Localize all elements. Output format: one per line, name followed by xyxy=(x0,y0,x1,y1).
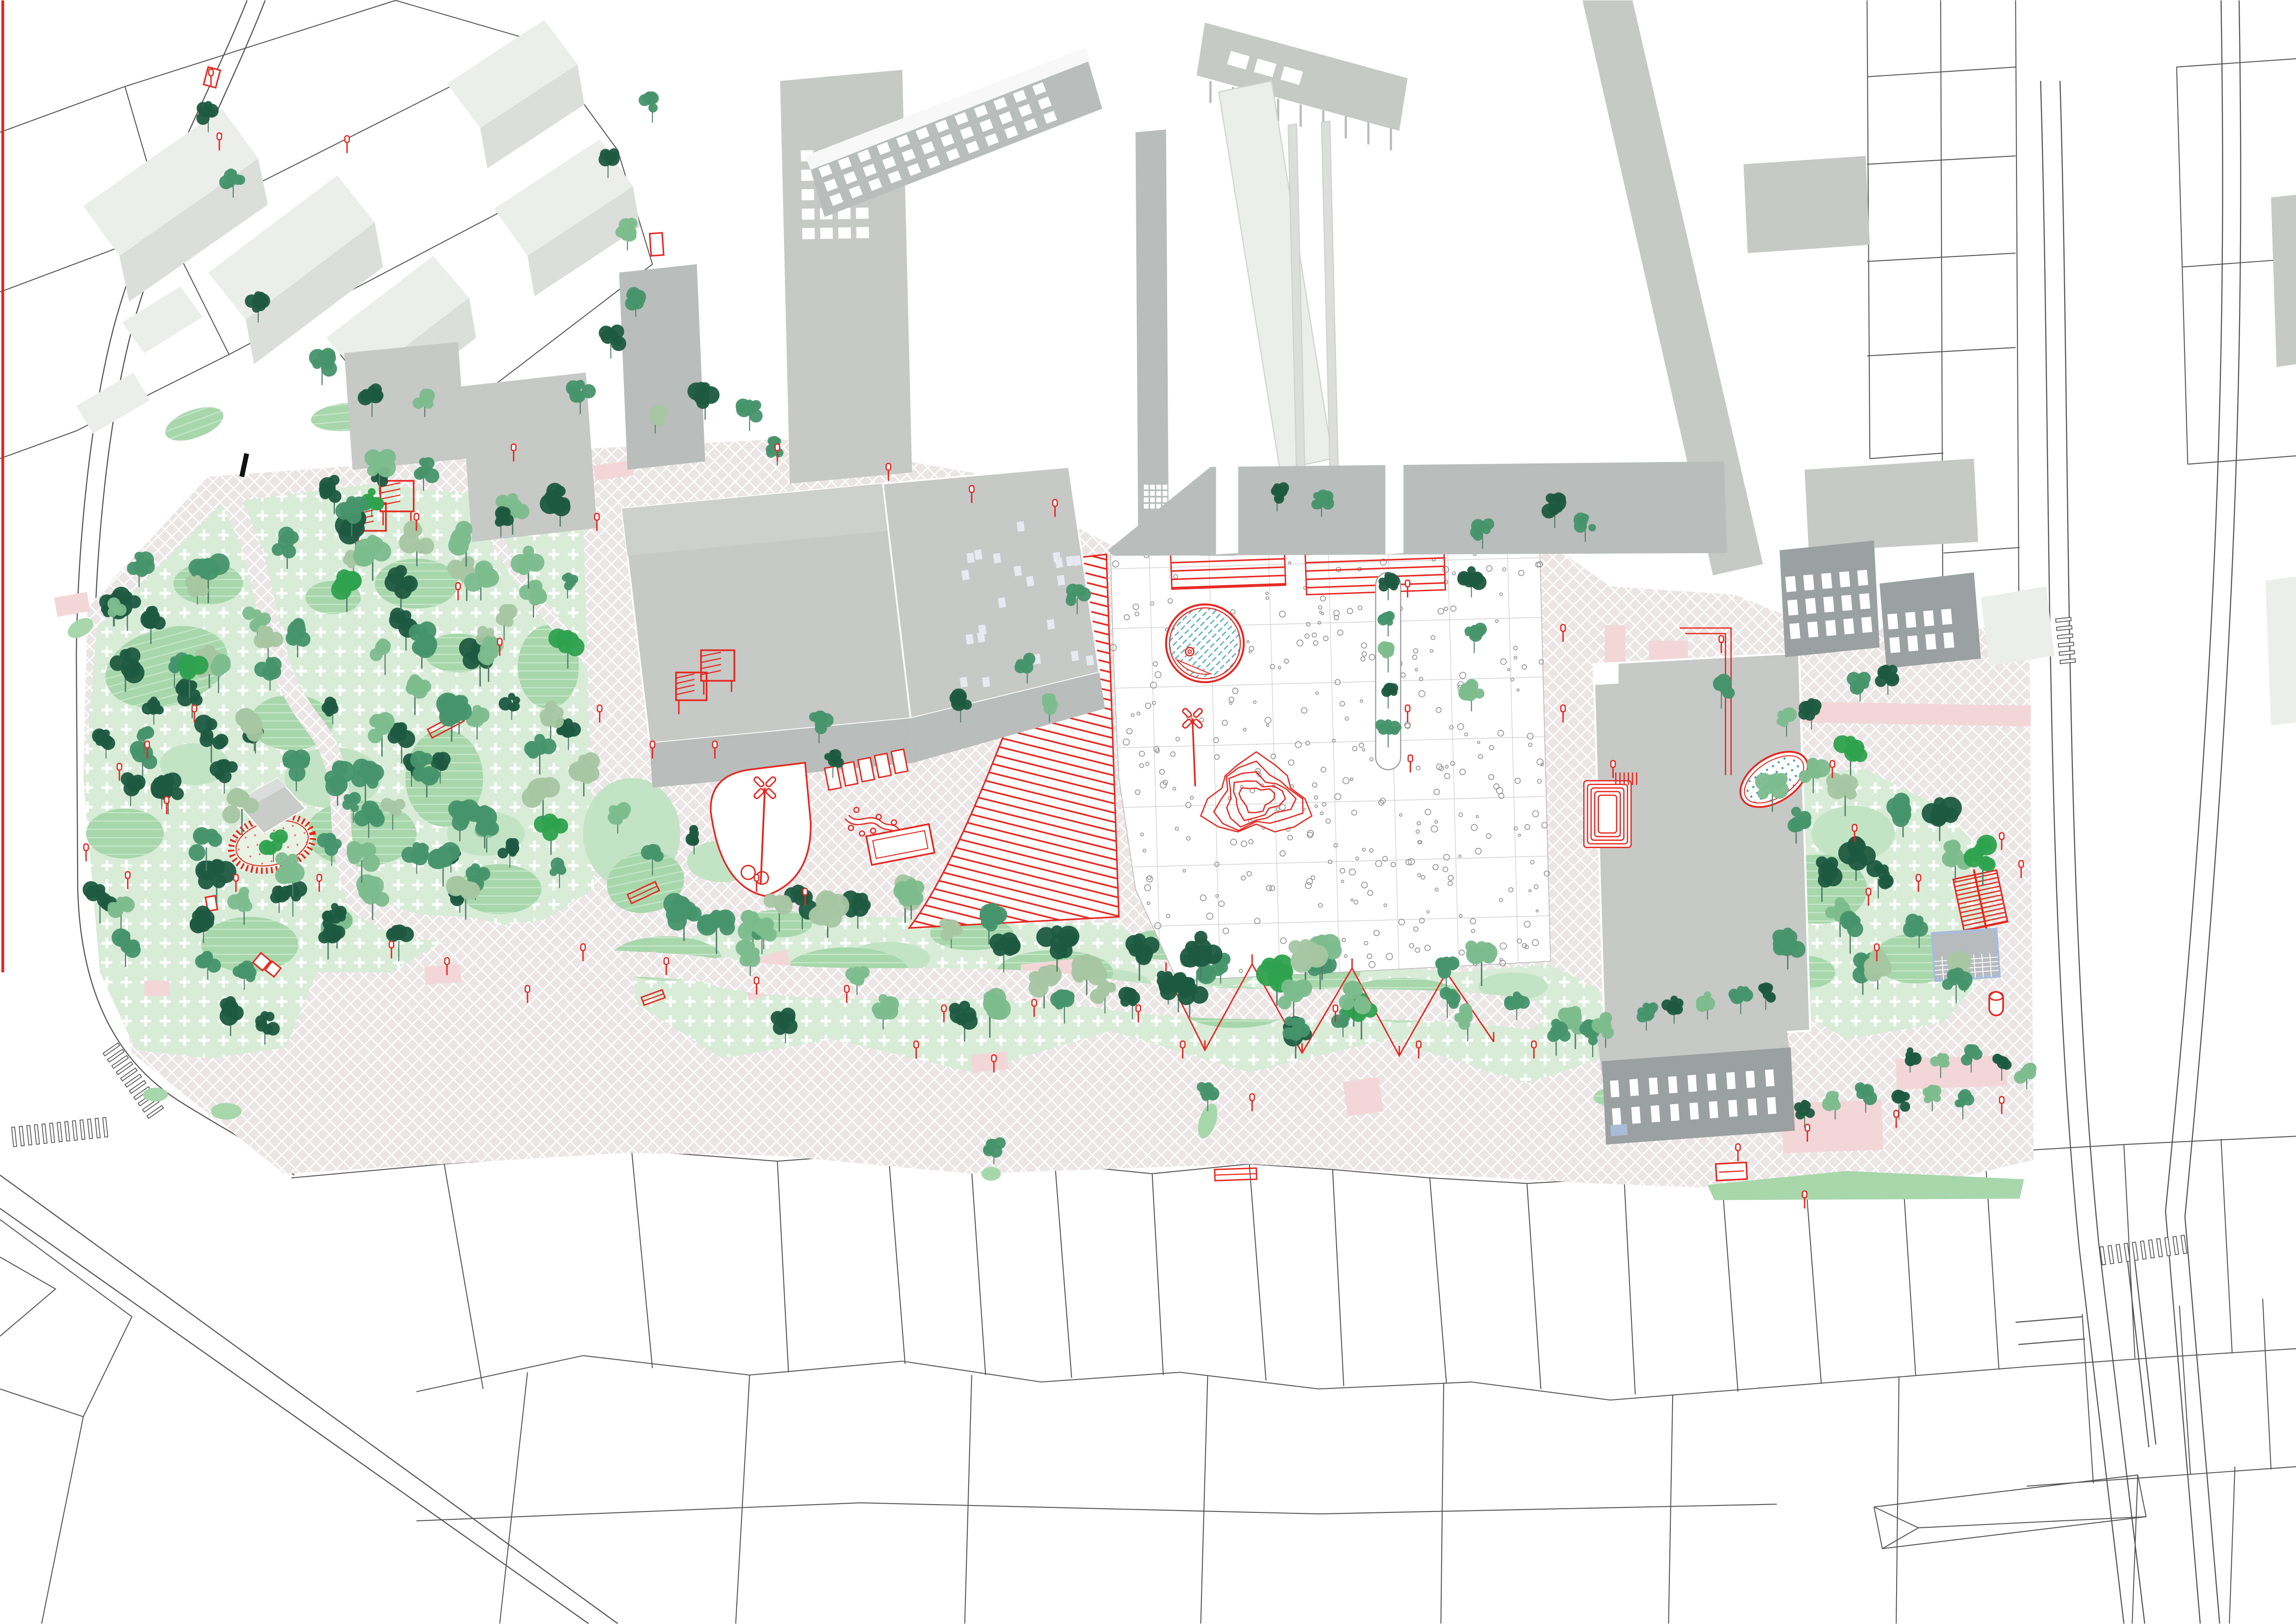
stool xyxy=(876,814,881,819)
tree-canopy xyxy=(171,787,184,800)
tree-canopy-top xyxy=(1101,983,1109,991)
window xyxy=(1807,621,1818,637)
tree-canopy-top xyxy=(394,926,403,935)
tree-canopy xyxy=(1744,993,1752,1000)
parcel-line xyxy=(632,1150,653,1368)
tree-canopy-top xyxy=(1767,775,1778,785)
tree-canopy-top xyxy=(374,452,385,462)
tree-canopy xyxy=(1853,682,1864,693)
crosswalk-stripe xyxy=(2140,1241,2147,1260)
lamp-head xyxy=(1406,580,1410,587)
tree-canopy-top xyxy=(95,884,106,895)
window xyxy=(820,228,833,239)
tree-canopy-top xyxy=(758,920,766,929)
parcel-line xyxy=(1870,453,1943,459)
tree-canopy-top xyxy=(254,291,262,300)
parcel-line xyxy=(778,1161,789,1372)
tree-canopy-top xyxy=(821,892,834,904)
lamp-head xyxy=(209,69,213,75)
parcel-line xyxy=(1527,1183,1541,1389)
tree-canopy-top xyxy=(330,698,336,705)
crosswalk-stripe xyxy=(87,1119,93,1138)
tree-canopy xyxy=(1457,573,1470,586)
tree-canopy-top xyxy=(1845,736,1856,747)
tree-canopy-top xyxy=(368,488,376,496)
tree-canopy-top xyxy=(436,755,444,762)
tree-canopy-top xyxy=(529,580,539,590)
roof-skylight xyxy=(1047,619,1055,630)
stool xyxy=(871,828,876,833)
tree-canopy xyxy=(267,665,281,680)
tree-canopy-top xyxy=(184,655,195,666)
tree-canopy xyxy=(464,573,483,592)
lamp-head xyxy=(581,944,585,950)
roof-skylight xyxy=(966,553,975,563)
tree-canopy-top xyxy=(959,1000,970,1012)
parcel-line xyxy=(1201,1375,1207,1624)
tree-canopy-top xyxy=(146,606,156,616)
road-edge-line xyxy=(2018,1339,2085,1344)
tree-canopy xyxy=(852,900,869,917)
tree-canopy-top xyxy=(236,790,248,802)
lamp-head xyxy=(1852,824,1857,831)
tree-canopy xyxy=(1978,856,1993,871)
window xyxy=(802,208,814,219)
site-plan-canvas xyxy=(0,0,2296,1624)
tree-canopy-top xyxy=(990,1139,997,1145)
lamp-head xyxy=(650,741,655,748)
window xyxy=(1767,1097,1776,1114)
tree-canopy xyxy=(279,865,297,883)
tree-canopy-top xyxy=(710,910,722,921)
lamp-head xyxy=(414,513,419,520)
south-building-entrance xyxy=(1610,1124,1628,1136)
tree-canopy xyxy=(423,399,433,408)
window xyxy=(856,227,869,238)
parcel-line xyxy=(2229,1467,2235,1624)
tree-canopy-top xyxy=(380,640,390,649)
roof-skylight xyxy=(998,597,1006,608)
tree-canopy-top xyxy=(230,169,237,177)
crosswalk-stripe xyxy=(2058,642,2074,647)
tree-canopy-top xyxy=(1348,982,1360,994)
tree-canopy-top xyxy=(211,859,223,871)
tree-canopy xyxy=(533,588,546,601)
tree-canopy-top xyxy=(1968,1047,1974,1054)
tree-canopy-top xyxy=(328,835,336,843)
tree-canopy-top xyxy=(1204,1083,1211,1091)
tree-canopy-top xyxy=(957,691,965,700)
lamp-head xyxy=(525,986,530,992)
tree-canopy xyxy=(773,1021,787,1035)
parcel-line xyxy=(2188,456,2296,464)
crosswalk xyxy=(2056,618,2076,664)
tree xyxy=(735,399,762,431)
parcel-line xyxy=(1152,1174,1163,1375)
tree-canopy xyxy=(522,787,542,808)
lamp-head xyxy=(217,133,222,139)
tree-canopy xyxy=(689,836,699,846)
crosswalk xyxy=(2100,1235,2187,1265)
lamp-head xyxy=(117,763,122,770)
roof-skylight xyxy=(982,677,990,687)
window xyxy=(1861,617,1873,633)
tree-canopy-top xyxy=(1809,758,1818,767)
tree-canopy-top xyxy=(1643,1003,1650,1010)
lamp-head xyxy=(445,958,449,964)
tree-canopy-top xyxy=(360,761,371,772)
tree-canopy-top xyxy=(473,705,482,714)
tree-canopy xyxy=(1847,921,1863,937)
tree-canopy-top xyxy=(1444,989,1451,997)
tree-canopy xyxy=(2014,1071,2027,1084)
tree-canopy-top xyxy=(205,718,218,731)
tree-canopy-top xyxy=(623,219,632,227)
tree-canopy-top xyxy=(1856,674,1864,681)
tree-canopy-top xyxy=(564,573,571,580)
parcel-line xyxy=(0,1219,132,1417)
tree-canopy-top xyxy=(479,805,491,817)
tree-canopy-top xyxy=(546,817,556,827)
tree-canopy-top xyxy=(1128,988,1137,997)
tree-canopy-top xyxy=(1850,836,1862,848)
tree-canopy-top xyxy=(781,1012,790,1020)
window xyxy=(1728,1100,1737,1117)
tree-canopy xyxy=(242,901,252,912)
tree-canopy-top xyxy=(1937,1053,1944,1059)
window xyxy=(1156,498,1161,502)
tree-canopy-top xyxy=(678,898,690,909)
tree-canopy xyxy=(1090,988,1105,1004)
tree-canopy-top xyxy=(1299,939,1312,952)
crosswalk-stripe xyxy=(72,1121,77,1140)
pink-paving-patch xyxy=(144,981,169,996)
tree-canopy-top xyxy=(1184,977,1195,988)
roof-skylight xyxy=(1066,556,1074,567)
crosswalk-stripe xyxy=(95,1118,100,1138)
tree-canopy xyxy=(569,389,583,403)
tree-canopy-top xyxy=(1977,840,1989,852)
tree-canopy-top xyxy=(1569,1006,1581,1018)
lamp-head xyxy=(1916,874,1921,881)
tree-canopy xyxy=(191,694,203,706)
tree-canopy-top xyxy=(225,996,236,1007)
tree-canopy-top xyxy=(454,802,465,813)
tree-canopy-top xyxy=(460,523,472,535)
crosswalk-stripe xyxy=(34,1124,39,1144)
tree-canopy-top xyxy=(261,1011,269,1020)
tree-canopy-top xyxy=(746,400,754,408)
green-oval xyxy=(143,1087,168,1101)
tree-canopy-top xyxy=(416,626,428,637)
tree-canopy-top xyxy=(253,609,262,618)
tree-canopy xyxy=(1188,949,1202,962)
tree-canopy xyxy=(1554,503,1563,512)
tree-canopy-top xyxy=(201,831,212,841)
tree-canopy-top xyxy=(1273,483,1281,491)
lamp-head xyxy=(1719,636,1724,642)
window xyxy=(1150,485,1155,489)
tree-canopy-top xyxy=(476,562,486,572)
tree-canopy-top xyxy=(632,289,640,296)
crosswalk-stripe xyxy=(2181,1235,2187,1254)
tree-canopy-top xyxy=(614,806,622,813)
tree-canopy-top xyxy=(564,718,572,727)
tree-canopy xyxy=(1905,1054,1916,1065)
window xyxy=(1841,595,1852,611)
window xyxy=(1857,570,1868,586)
site-plan xyxy=(0,0,2296,1624)
tree-canopy-top xyxy=(648,844,657,852)
context-building xyxy=(1136,130,1169,553)
window xyxy=(1144,485,1149,489)
crosswalk-stripe xyxy=(2157,1239,2163,1257)
parcel-line xyxy=(972,1171,986,1375)
window xyxy=(1163,498,1167,502)
tree-canopy-top xyxy=(239,887,249,897)
lamp-head xyxy=(1866,888,1871,895)
parcel-line xyxy=(2132,1475,2138,1624)
tree-canopy-top xyxy=(199,909,208,918)
tree-canopy xyxy=(1291,952,1309,970)
tree-canopy-top xyxy=(282,531,292,541)
tree-canopy-top xyxy=(1467,680,1475,688)
parcel-line xyxy=(1668,1394,1673,1624)
lamp-head xyxy=(845,986,849,992)
tree-canopy xyxy=(1203,944,1222,964)
tree-canopy xyxy=(1449,999,1459,1009)
tree-canopy-top xyxy=(134,552,143,561)
tree-canopy-top xyxy=(331,903,338,910)
lamp-head xyxy=(317,874,322,881)
tree-canopy-top xyxy=(1915,916,1923,924)
window xyxy=(1707,1074,1716,1091)
tree-canopy-top xyxy=(1385,684,1391,690)
tree-canopy-top xyxy=(438,846,448,857)
tree-canopy-top xyxy=(317,350,327,360)
tree-canopy xyxy=(821,906,842,928)
tree-canopy-top xyxy=(508,693,516,700)
tree-canopy-top xyxy=(1782,928,1793,939)
tree-canopy-top xyxy=(287,854,299,865)
crosswalk-stripe xyxy=(80,1120,85,1139)
window xyxy=(802,228,815,239)
tree-canopy xyxy=(1050,942,1067,960)
window xyxy=(1687,1075,1697,1092)
lamp-head xyxy=(1611,761,1615,767)
tree-canopy xyxy=(1878,876,1892,889)
tree-canopy-top xyxy=(410,674,421,685)
crosswalk-stripe xyxy=(2057,634,2073,639)
tree-canopy-top xyxy=(1081,954,1092,965)
tree-canopy-top xyxy=(187,681,197,691)
roof-skylight xyxy=(993,553,1001,563)
tree-canopy xyxy=(570,764,583,777)
parcel-line xyxy=(2263,1299,2271,1469)
window xyxy=(1907,635,1918,651)
lamp-head xyxy=(942,1005,946,1012)
lamp-head xyxy=(1561,625,1566,631)
tree-canopy xyxy=(1473,531,1483,541)
tree-canopy xyxy=(223,181,230,189)
lamp-head xyxy=(1874,944,1879,950)
tree-canopy-top xyxy=(1384,719,1392,727)
window xyxy=(1150,504,1155,508)
tree-canopy-top xyxy=(499,605,509,614)
window xyxy=(1843,618,1854,635)
road-edge-line xyxy=(2060,81,2145,1624)
tree-canopy-top xyxy=(1884,667,1892,674)
window xyxy=(1670,1104,1679,1121)
parcel-line xyxy=(417,1349,2296,1400)
tree-canopy-top xyxy=(357,844,367,854)
tree-canopy-top xyxy=(853,967,861,974)
tree-canopy-top xyxy=(700,382,710,393)
lamp-head xyxy=(1802,1191,1807,1198)
tree-canopy-top xyxy=(1384,644,1392,652)
roof-skylight xyxy=(1017,521,1025,532)
lamp-head xyxy=(164,797,169,803)
crosswalk-stripe xyxy=(27,1125,32,1145)
crosswalk xyxy=(12,1118,108,1147)
tree-canopy xyxy=(1385,726,1394,735)
tree-canopy-top xyxy=(607,327,615,336)
lamp-head xyxy=(1805,1124,1810,1131)
tree-canopy-top xyxy=(1873,864,1883,873)
lamp-head xyxy=(1053,500,1058,506)
roof-skylight xyxy=(961,570,970,581)
tree-canopy xyxy=(983,1144,995,1156)
window xyxy=(1144,498,1149,502)
parcel-line xyxy=(1896,1376,1899,1624)
tree-canopy-top xyxy=(1952,969,1961,978)
tree-canopy xyxy=(1946,856,1958,868)
lamp-head xyxy=(754,874,759,881)
parcel-line xyxy=(1249,1164,1266,1380)
tree-canopy-top xyxy=(323,918,334,929)
roof-skylight xyxy=(1053,552,1061,562)
tree-canopy-top xyxy=(266,657,274,666)
tree-canopy-top xyxy=(746,941,755,950)
tree-canopy-top xyxy=(1384,572,1392,580)
tree-canopy-top xyxy=(102,730,110,737)
lamp-head xyxy=(713,741,717,748)
window xyxy=(1144,491,1149,496)
lamp-head xyxy=(992,1055,996,1062)
roof-skylight xyxy=(1026,576,1034,587)
parcel-line xyxy=(1430,1178,1446,1383)
road-edge-line xyxy=(2041,81,2124,1624)
lamp-head xyxy=(1561,705,1566,712)
tree-canopy-top xyxy=(204,951,212,959)
parcel-line xyxy=(2177,67,2188,464)
context-building xyxy=(1385,462,1403,555)
tree-canopy-top xyxy=(1470,625,1478,632)
tree-canopy-top xyxy=(691,826,698,834)
lamp-head xyxy=(914,1041,919,1048)
tree-canopy xyxy=(220,1007,239,1026)
tree-canopy xyxy=(1777,718,1785,725)
parcel-line xyxy=(42,1417,83,1624)
tree-canopy xyxy=(1559,1030,1571,1042)
road-edge-line xyxy=(2165,0,2222,1624)
tree-canopy-top xyxy=(652,406,659,413)
window xyxy=(1789,623,1800,639)
lamp-head xyxy=(145,741,149,748)
parcel-line xyxy=(889,1153,905,1364)
tree-canopy xyxy=(1588,524,1596,531)
tree-canopy xyxy=(259,840,274,855)
tree-canopy-top xyxy=(389,800,397,808)
tree-canopy xyxy=(1798,708,1810,720)
tree-canopy xyxy=(540,493,560,514)
tree-canopy-top xyxy=(576,380,585,389)
window xyxy=(838,227,851,238)
tree-canopy xyxy=(509,849,517,857)
tree-canopy-top xyxy=(202,558,214,570)
tree-canopy-top xyxy=(1807,698,1816,706)
tree-canopy-top xyxy=(1873,953,1883,963)
context-building xyxy=(1743,156,1870,253)
tree-canopy-top xyxy=(878,994,888,1003)
east-building-notch xyxy=(1593,663,1618,685)
tree-canopy-top xyxy=(364,803,373,812)
parcel-line xyxy=(1332,1169,1344,1386)
tree-canopy-top xyxy=(1073,586,1081,593)
tree-canopy-top xyxy=(150,697,157,704)
parcel-line xyxy=(1624,1178,1635,1394)
tree-canopy-top xyxy=(497,509,504,516)
tree-canopy-top xyxy=(471,863,480,873)
tree-canopy xyxy=(650,415,660,425)
tree-canopy xyxy=(697,396,709,409)
window xyxy=(1163,491,1167,496)
tree-canopy-top xyxy=(204,645,215,656)
tree-canopy-top xyxy=(275,886,283,893)
tree-canopy-top xyxy=(1950,843,1960,853)
tree-canopy xyxy=(387,731,400,743)
parcel-line xyxy=(1441,1383,1444,1624)
tree-canopy-top xyxy=(556,861,563,868)
tree-canopy-top xyxy=(269,832,277,840)
lamp-head xyxy=(498,638,502,645)
tree-canopy xyxy=(368,729,383,743)
tree-canopy xyxy=(266,1022,280,1035)
tree-canopy-top xyxy=(1762,985,1769,991)
parcel-line xyxy=(2177,59,2296,67)
lamp-head xyxy=(754,977,759,984)
context-building xyxy=(2271,195,2296,367)
tree-canopy-top xyxy=(170,656,179,665)
tree-canopy-top xyxy=(121,931,131,940)
tree-canopy-top xyxy=(578,755,589,766)
window xyxy=(1785,576,1796,592)
tree-canopy-top xyxy=(421,389,429,396)
tree-canopy-top xyxy=(332,763,343,774)
tree-canopy-top xyxy=(1783,708,1790,716)
tree-canopy xyxy=(1697,1000,1707,1010)
lamp-head xyxy=(125,872,130,878)
parcel-line xyxy=(1943,548,2020,553)
tree-canopy-top xyxy=(342,571,352,582)
tree xyxy=(599,325,626,359)
tree-canopy-top xyxy=(1581,514,1589,521)
tree-canopy-top xyxy=(1551,1018,1561,1028)
window xyxy=(1825,620,1836,636)
roof-skylight xyxy=(1057,575,1065,586)
tree-canopy xyxy=(583,765,599,781)
tree-canopy xyxy=(1844,743,1863,762)
